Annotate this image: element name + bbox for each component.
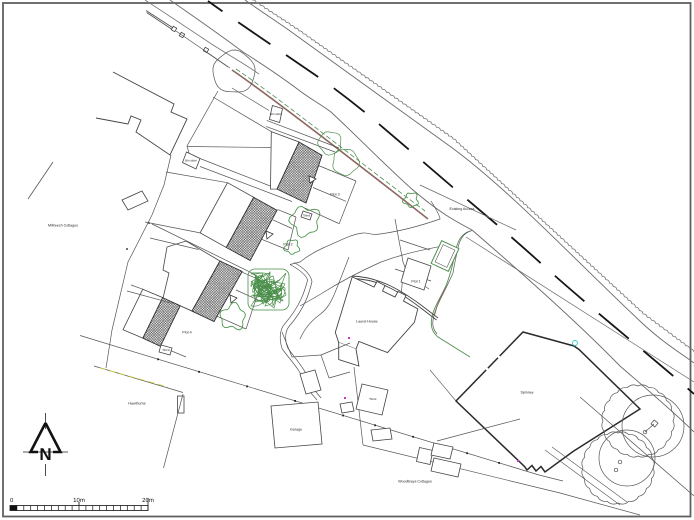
svg-text:Shed: Shed xyxy=(303,214,310,218)
svg-text:Existing Access: Existing Access xyxy=(450,207,475,211)
svg-text:Shed: Shed xyxy=(162,348,169,352)
svg-text:Garage: Garage xyxy=(290,427,302,431)
svg-text:Plot 4: Plot 4 xyxy=(182,330,191,334)
svg-text:Bin store: Bin store xyxy=(270,112,282,116)
svg-text:Plot 1: Plot 1 xyxy=(411,279,420,283)
svg-text:10m: 10m xyxy=(73,497,85,504)
svg-text:20m: 20m xyxy=(142,497,154,504)
svg-text:Plot 3: Plot 3 xyxy=(330,192,339,196)
svg-text:N: N xyxy=(39,445,51,464)
svg-text:Woodbrays Cottages: Woodbrays Cottages xyxy=(398,479,432,483)
svg-text:Miltreech Cottages: Miltreech Cottages xyxy=(48,223,78,227)
svg-text:Store: Store xyxy=(369,397,377,401)
svg-text:Hawthorns: Hawthorns xyxy=(128,401,145,405)
svg-text:Plot 2: Plot 2 xyxy=(283,242,292,246)
svg-text:Spinney: Spinney xyxy=(521,390,534,394)
svg-text:Bin store: Bin store xyxy=(185,159,197,163)
svg-text:Laurel House: Laurel House xyxy=(356,319,377,323)
